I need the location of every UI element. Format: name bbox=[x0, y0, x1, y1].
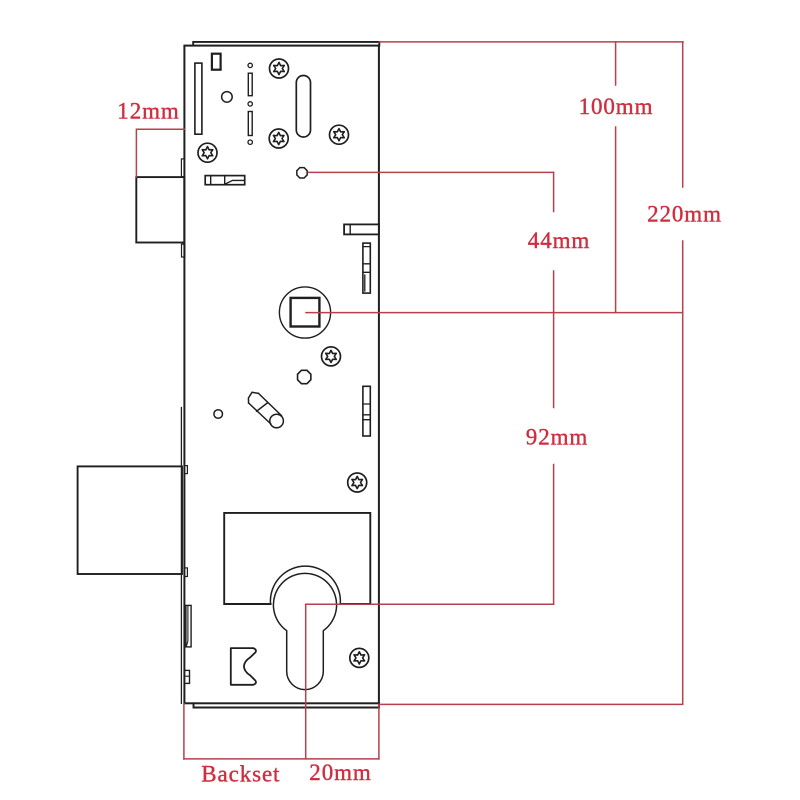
svg-text:12mm: 12mm bbox=[117, 99, 179, 124]
svg-text:220mm: 220mm bbox=[647, 202, 722, 227]
svg-text:44mm: 44mm bbox=[528, 228, 590, 253]
svg-text:Backset: Backset bbox=[201, 762, 280, 787]
svg-text:20mm: 20mm bbox=[309, 760, 371, 785]
svg-text:92mm: 92mm bbox=[526, 425, 588, 450]
svg-text:100mm: 100mm bbox=[579, 94, 654, 119]
